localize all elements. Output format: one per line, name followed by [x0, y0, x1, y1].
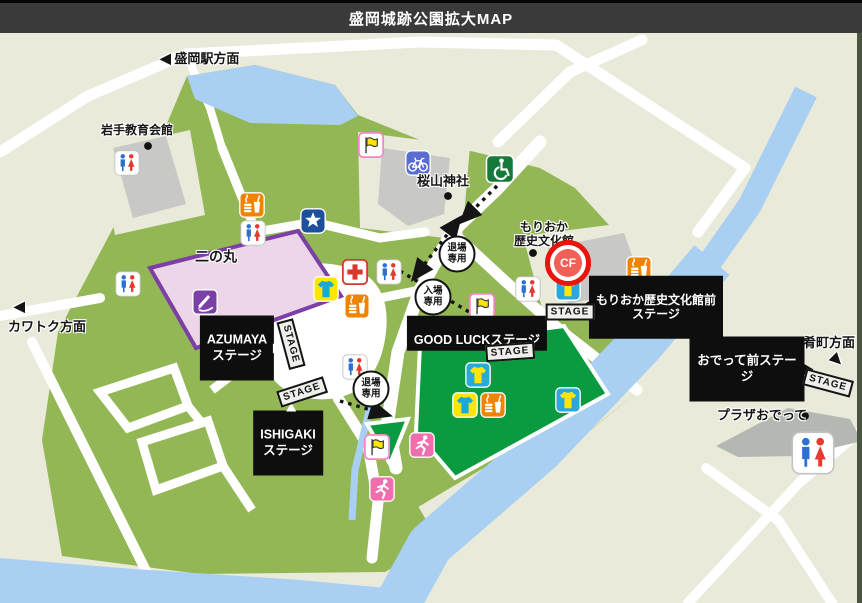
rekishi-mae-stage-text: もりおか歴史文化館前 ステージ [596, 292, 716, 321]
firstaid-icon [342, 259, 369, 286]
label-rekishi-mae-stage: もりおか歴史文化館前 ステージ [589, 276, 723, 339]
label-pointer [273, 343, 282, 353]
badge-entry-only: 入場 専用 [415, 279, 452, 316]
toilet-icon [515, 276, 542, 303]
page-title: 盛岡城跡公園拡大MAP [349, 8, 513, 29]
label-sakurayama-jinja: 桜山神社 [417, 173, 469, 188]
tshirt-a-icon [452, 392, 479, 419]
direction-station: ◀ 盛岡駅方面 [160, 48, 239, 67]
direction-kawatoku-text: カワトク方面 [8, 319, 86, 334]
tshirt-b-icon [555, 387, 582, 414]
tshirt-a-icon [313, 276, 340, 303]
left-arrow-icon: ◀ [14, 298, 86, 315]
toilet-icon [240, 220, 267, 247]
direction-sakanacho-text: 肴町方面 [803, 335, 855, 350]
flag-icon [358, 132, 385, 159]
food-icon [480, 392, 507, 419]
map-header: 盛岡城跡公園拡大MAP [0, 0, 862, 33]
cf-badge-text: CF [554, 249, 582, 277]
label-ninomaru: 二の丸 [195, 249, 237, 266]
toilet-icon [790, 430, 836, 476]
map-canvas: ◀ 盛岡駅方面 ◀ カワトク方面 肴町方面 ▶ 岩手教育会館 桜山神社 もりおか… [0, 0, 862, 603]
ishigaki-stage-text: ISHIGAKI ステージ [260, 428, 316, 457]
flag-icon [364, 434, 391, 461]
toilet-icon [114, 150, 141, 177]
wheelchair-icon [485, 154, 515, 184]
direction-station-text: 盛岡駅方面 [174, 51, 239, 66]
odette-mae-stage-text: おでって前ステージ [697, 354, 796, 383]
azumaya-stage-text: AZUMAYA ステージ [207, 333, 267, 362]
star-icon [300, 208, 327, 235]
tshirt-b-icon [465, 362, 492, 389]
left-arrow-icon: ◀ [160, 50, 171, 67]
dot-icon [527, 247, 540, 260]
dot-icon [442, 190, 455, 203]
label-odette-mae-stage: おでって前ステージ [690, 337, 805, 402]
direction-kawatoku: ◀ カワトク方面 [8, 298, 86, 335]
label-ishigaki-stage: ISHIGAKI ステージ [253, 411, 323, 476]
food-icon [344, 293, 371, 320]
cf-highlight-badge: CF [545, 240, 591, 286]
label-plaza-odette: プラザおでって [717, 407, 807, 422]
runner-icon [369, 476, 396, 503]
badge-exit-only-north: 退場 専用 [439, 236, 476, 273]
stage-signpost-rekishi-mae: STAGE [546, 304, 595, 321]
stamp-icon [192, 289, 219, 316]
label-iwate-kyoiku-kaikan: 岩手教育会館 [101, 123, 173, 137]
badge-exit-only-south: 退場 専用 [353, 371, 390, 408]
toilet-icon [115, 271, 142, 298]
stage-signpost-goodluck: STAGE [485, 342, 535, 362]
runner-icon [409, 432, 436, 459]
map-page: ◀ 盛岡駅方面 ◀ カワトク方面 肴町方面 ▶ 岩手教育会館 桜山神社 もりおか… [0, 0, 862, 603]
toilet-icon [376, 259, 403, 286]
map-right-edge [857, 33, 862, 603]
se-arrow-icon: ▶ [828, 350, 848, 370]
food-icon [239, 192, 266, 219]
label-azumaya-stage: AZUMAYA ステージ [200, 316, 274, 381]
dot-icon [142, 140, 155, 153]
